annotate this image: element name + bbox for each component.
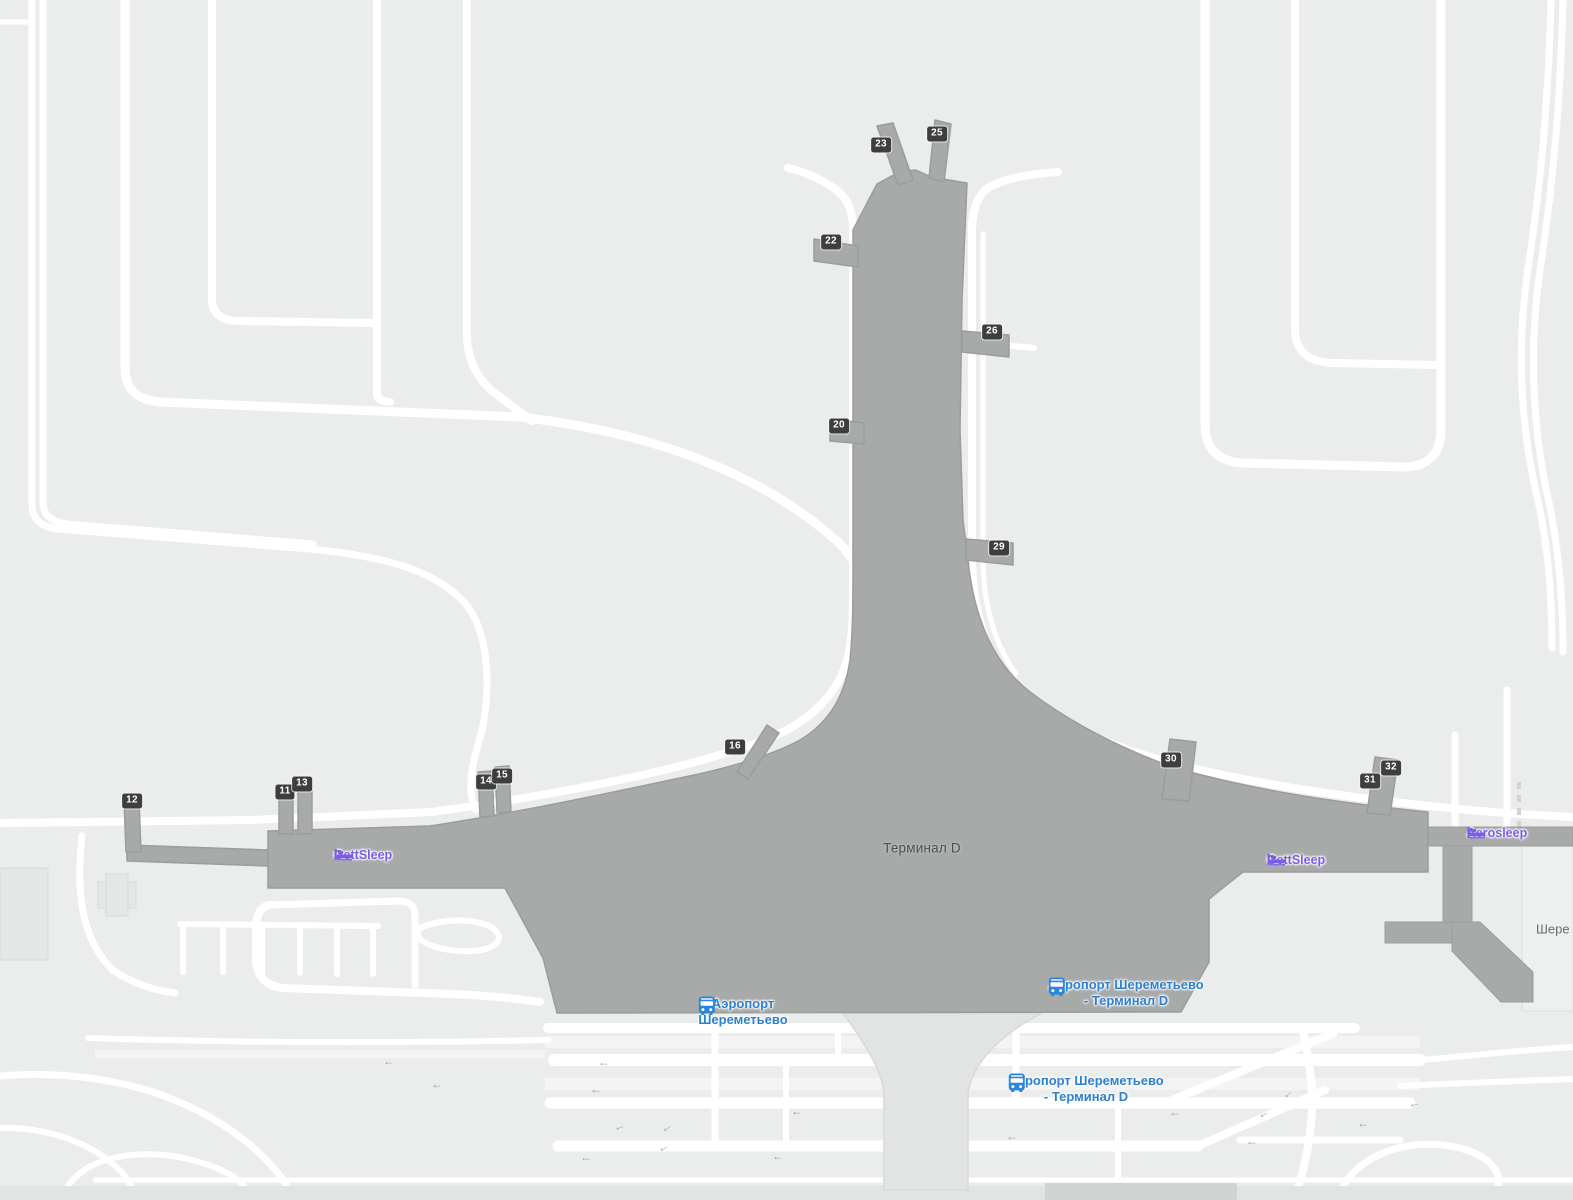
gate-badge[interactable]: 30	[1161, 753, 1181, 768]
road-direction-arrow-icon: ←	[1407, 1096, 1422, 1111]
gate-badge[interactable]: 12	[122, 794, 142, 809]
road-direction-arrow-icon: ←	[1279, 1085, 1296, 1102]
road-direction-arrow-icon: ←	[1006, 1130, 1018, 1142]
hotel-marker[interactable]: GettSleep	[334, 848, 392, 866]
hotel-marker[interactable]: GettSleep	[1267, 853, 1325, 871]
bus-stop-name-line1: Аэропорт	[712, 996, 775, 1011]
gate-badge[interactable]: 31	[1360, 774, 1380, 789]
road-direction-arrow-icon: ←	[1255, 1105, 1271, 1121]
gate-badge[interactable]: 13	[292, 777, 312, 792]
bus-stop-marker[interactable]: Аэропорт Шереметьево- Терминал D	[1008, 1073, 1163, 1107]
bus-icon	[1008, 1073, 1025, 1092]
bed-icon	[1467, 826, 1486, 839]
bus-icon	[698, 996, 715, 1015]
road-direction-arrow-icon: ←	[1246, 1135, 1258, 1147]
bus-stop-marker[interactable]: АэропортШереметьево	[698, 996, 787, 1030]
road-direction-arrow-icon: ←	[590, 1083, 602, 1095]
bus-icon	[1048, 977, 1065, 996]
gate-badge[interactable]: 20	[829, 419, 849, 434]
map-canvas[interactable]: Терминал D Шере 121113141516202223252629…	[0, 0, 1573, 1200]
gate-badge[interactable]: 25	[927, 127, 947, 142]
bed-icon	[1267, 853, 1286, 866]
gate-badge[interactable]: 15	[492, 769, 512, 784]
gate-badge[interactable]: 32	[1381, 761, 1401, 776]
gate-badge[interactable]: 29	[989, 541, 1009, 556]
terminal-name-label[interactable]: Терминал D	[883, 841, 961, 856]
road-direction-arrow-icon: ←	[1169, 1106, 1181, 1118]
gate-badge[interactable]: 26	[982, 325, 1002, 340]
road-direction-arrow-icon: ←	[598, 1056, 610, 1068]
road-direction-arrow-icon: ←	[791, 1105, 803, 1117]
labels-layer: Терминал D Шере 121113141516202223252629…	[0, 0, 1573, 1200]
road-direction-arrow-icon: ←	[431, 1078, 443, 1090]
bus-stop-name-line2: - Терминал D	[1084, 993, 1168, 1008]
bus-stop-name-line1: Аэропорт Шереметьево	[1048, 977, 1203, 992]
gate-badge[interactable]: 16	[725, 740, 745, 755]
road-direction-arrow-icon: ←	[1357, 1117, 1369, 1129]
road-direction-arrow-icon: ←	[580, 1151, 592, 1163]
gate-badge[interactable]: 22	[821, 235, 841, 250]
road-direction-arrow-icon: ←	[772, 1150, 784, 1162]
bus-stop-marker[interactable]: Аэропорт Шереметьево- Терминал D	[1048, 977, 1203, 1011]
road-direction-arrow-icon: ←	[655, 1139, 671, 1155]
bus-stop-name-line1: Аэропорт Шереметьево	[1008, 1073, 1163, 1088]
road-direction-arrow-icon: ←	[658, 1119, 675, 1136]
bed-icon	[334, 848, 353, 861]
gate-badge[interactable]: 23	[871, 138, 891, 153]
road-direction-arrow-icon: ←	[611, 1118, 626, 1133]
hotel-marker[interactable]: Aerosleep	[1467, 826, 1527, 844]
road-direction-arrow-icon: ←	[383, 1055, 395, 1067]
bus-stop-name-line2: - Терминал D	[1044, 1089, 1128, 1104]
clipped-place-label[interactable]: Шере	[1536, 922, 1570, 937]
